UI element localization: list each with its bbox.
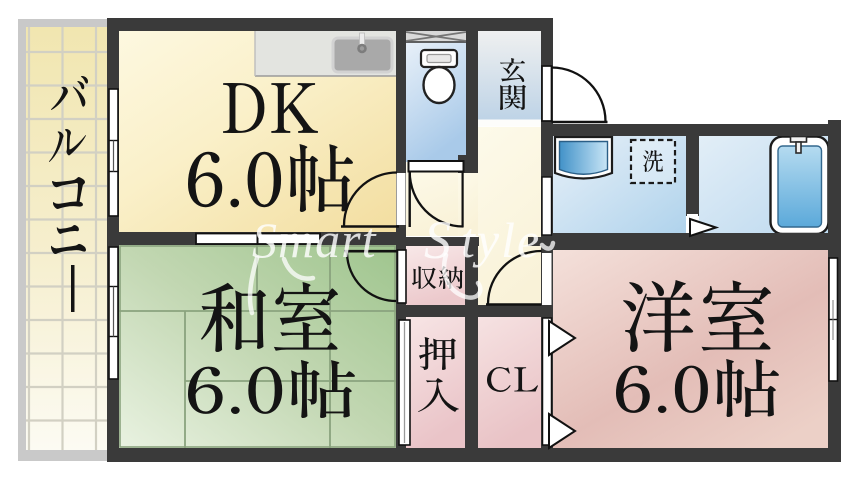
svg-text:S: S — [424, 210, 451, 270]
svg-text:Smart: Smart — [252, 212, 377, 268]
svg-text:tyle: tyle — [461, 212, 541, 268]
